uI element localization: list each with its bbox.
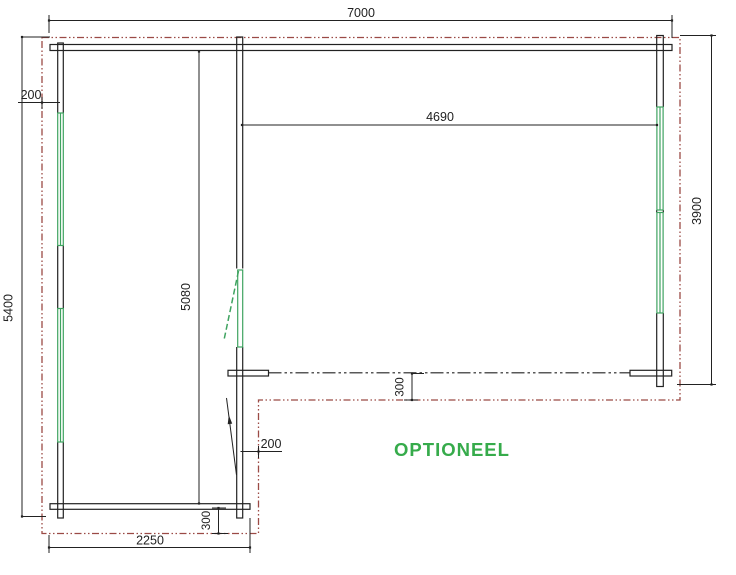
dim-overhang-veranda-label: 300 [395, 377, 407, 396]
dim-overhang-annex: 300 [201, 507, 228, 535]
wall-right [657, 36, 664, 387]
dim-interior-depth: 5080 [179, 50, 200, 504]
dim-annex-width-label: 2250 [136, 534, 164, 548]
dim-overhang-top-left-label: 200 [21, 88, 42, 102]
dim-overhang-annex-label: 300 [201, 511, 213, 530]
floor-plan-drawing: 7000 4690 3900 5400 5080 [0, 0, 736, 575]
floor-plan-canvas: 7000 4690 3900 5400 5080 [0, 0, 736, 575]
dim-interior-depth-label: 5080 [179, 283, 193, 311]
dim-left-depth: 5400 [2, 36, 51, 518]
windows [57, 107, 665, 442]
optional-note: OPTIONEEL [394, 439, 510, 460]
dim-overhang-door: 200 [241, 437, 283, 458]
dim-right-depth-label: 3900 [690, 197, 704, 225]
dim-overall-width-label: 7000 [347, 6, 375, 20]
dim-interior-width: 4690 [241, 110, 658, 126]
dim-overhang-veranda: 300 [395, 372, 425, 401]
dim-overhang-door-label: 200 [261, 437, 282, 451]
door-swing-line [227, 398, 237, 475]
door-green-leaf [238, 270, 243, 347]
walls [50, 36, 672, 519]
doors [224, 269, 245, 476]
dim-annex-width: 2250 [48, 518, 251, 553]
roof-overhang-outline [42, 38, 680, 534]
veranda-post-bar-right [630, 370, 672, 376]
veranda-post-bar-left [228, 370, 269, 376]
dim-overall-width: 7000 [48, 6, 673, 38]
door-swing-arrow [228, 415, 233, 424]
dim-overhang-top-left: 200 [18, 88, 60, 109]
dim-right-depth: 3900 [677, 34, 716, 385]
wall-top [50, 45, 672, 51]
dim-interior-width-label: 4690 [426, 110, 454, 124]
dim-left-depth-label: 5400 [2, 294, 16, 322]
